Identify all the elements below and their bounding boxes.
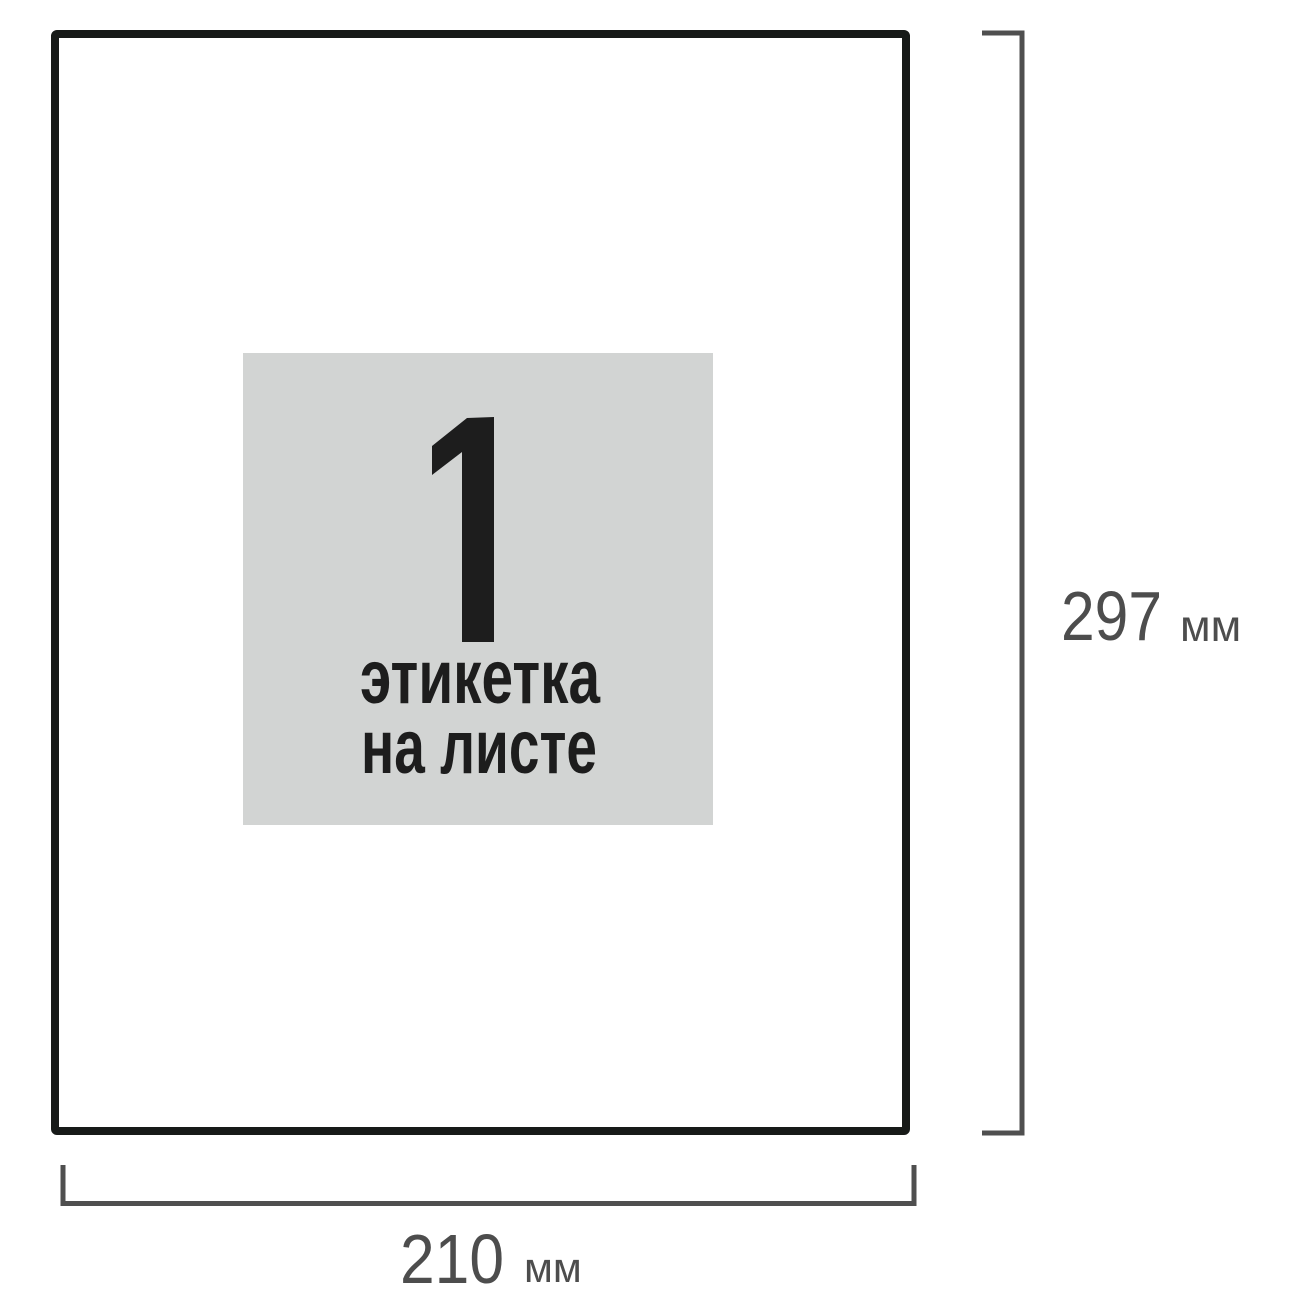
svg-text:на листе: на листе (361, 705, 597, 790)
svg-text:мм: мм (524, 1244, 582, 1291)
svg-text:мм: мм (1180, 602, 1241, 651)
svg-text:210: 210 (400, 1220, 504, 1298)
svg-text:297: 297 (1061, 577, 1162, 655)
